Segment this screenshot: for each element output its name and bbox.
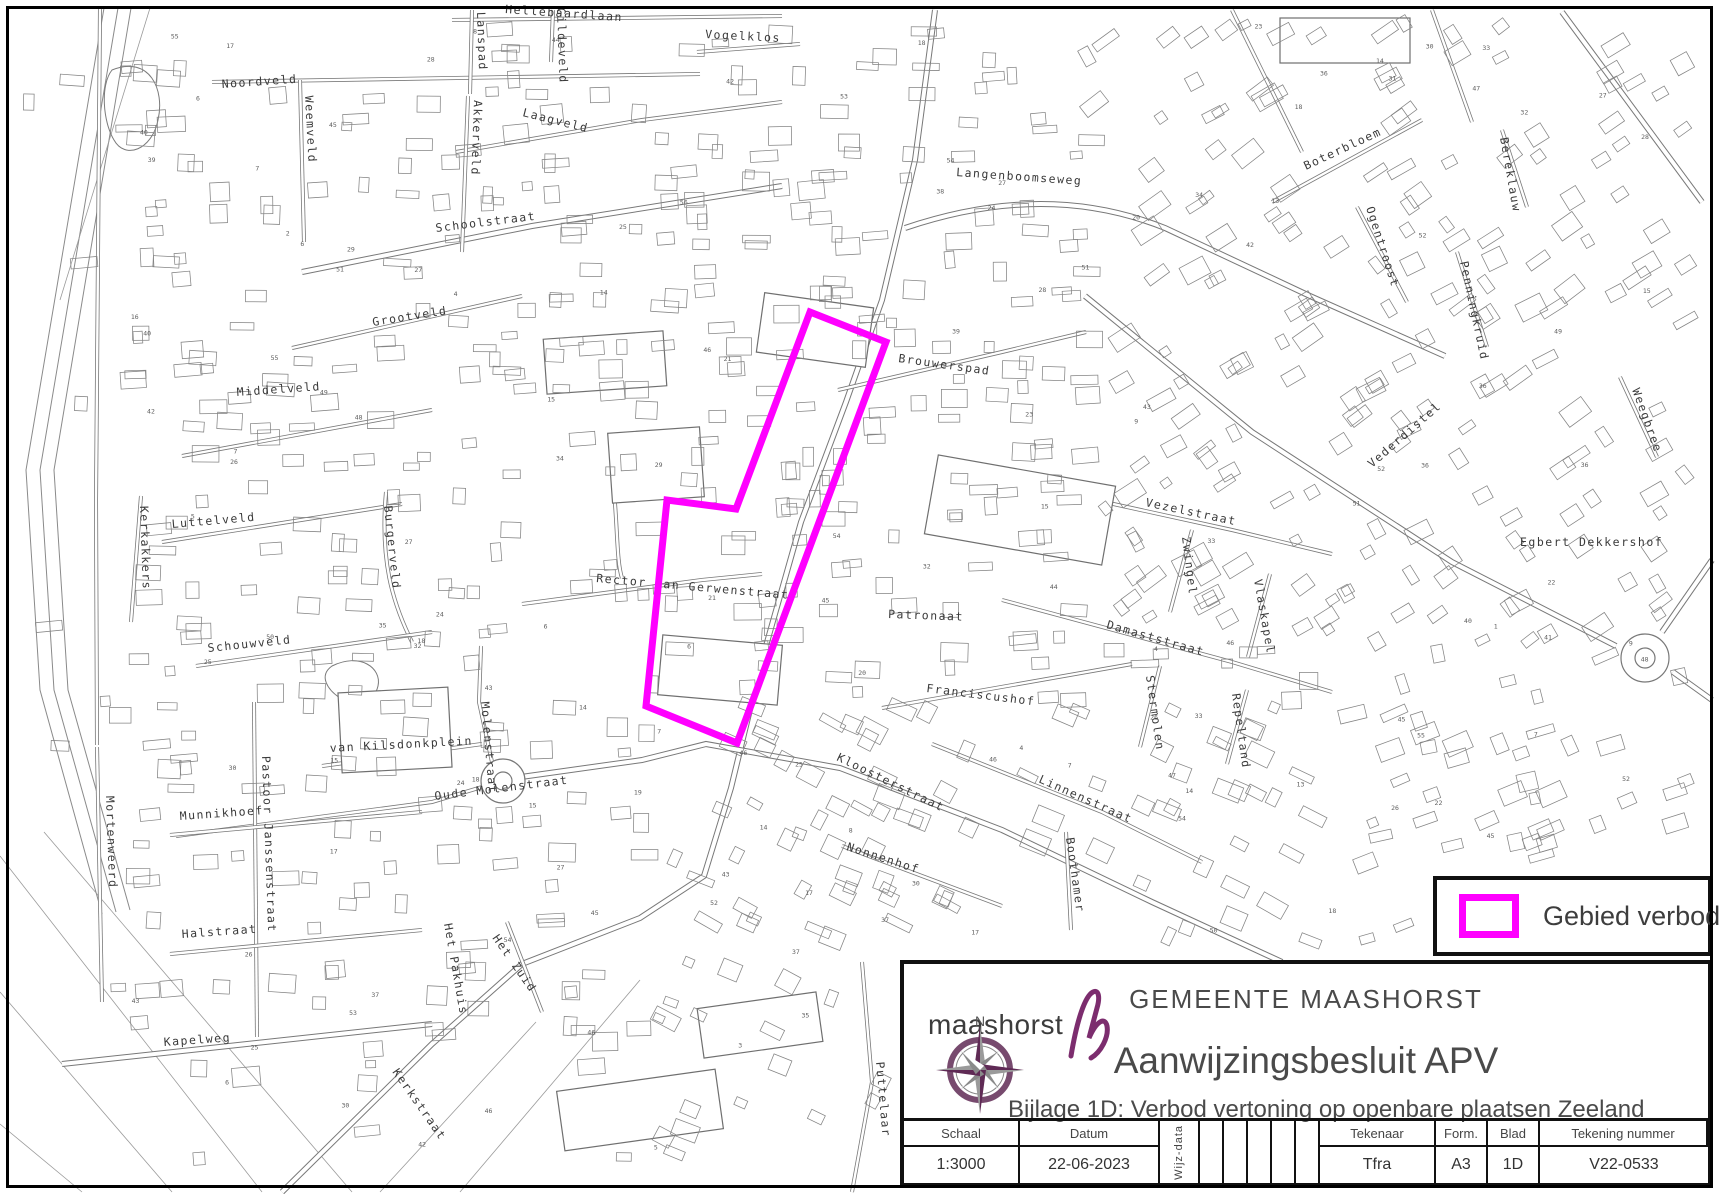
street-label: Vezelstraat: [1144, 495, 1238, 528]
house-number: 27: [1599, 91, 1607, 99]
building: [951, 151, 974, 162]
house-number: 2: [286, 229, 290, 237]
building: [734, 1097, 748, 1109]
building: [1032, 805, 1064, 832]
building: [507, 46, 529, 63]
building: [1623, 73, 1645, 91]
house-number: 25: [619, 223, 627, 231]
building: [248, 481, 267, 494]
building: [993, 262, 1006, 281]
street-label: Noordveld: [221, 72, 298, 91]
building: [1404, 181, 1432, 208]
building: [1092, 29, 1119, 52]
building: [1018, 380, 1029, 393]
building: [835, 238, 860, 256]
street-label: Kerkakkers: [137, 506, 154, 591]
house-number: 37: [371, 991, 379, 999]
house-number: 37: [792, 948, 800, 956]
building: [486, 22, 512, 37]
col-form: Form.: [1436, 1121, 1488, 1147]
house-number: 15: [1041, 502, 1049, 510]
building: [133, 875, 160, 888]
house-number: 9: [1134, 418, 1138, 426]
building: [1503, 365, 1532, 390]
building: [357, 1075, 377, 1092]
building: [1552, 211, 1583, 241]
building: [174, 253, 186, 265]
building: [136, 589, 162, 605]
building: [333, 566, 347, 576]
building: [51, 740, 69, 751]
building: [1500, 508, 1522, 527]
house-number: 32: [1520, 108, 1528, 116]
building: [796, 402, 815, 412]
house-number: 24: [988, 204, 996, 212]
building: [542, 158, 569, 168]
building: [570, 580, 592, 594]
house-number: 39: [952, 327, 960, 335]
building: [181, 631, 202, 645]
street-label: Middelveld: [236, 379, 321, 399]
house-number: 38: [936, 188, 944, 196]
building: [1264, 207, 1281, 222]
building: [23, 94, 34, 110]
building: [1611, 186, 1629, 203]
building: [173, 60, 186, 76]
building: [1581, 234, 1595, 249]
building: [501, 522, 521, 538]
building: [331, 533, 344, 551]
road-casing: [282, 10, 935, 1192]
house-number: 26: [230, 458, 238, 466]
house-number: 4: [1019, 744, 1023, 752]
railway-line: [54, 8, 131, 910]
building: [462, 438, 477, 449]
building: [297, 597, 320, 615]
road-fill: [182, 410, 432, 456]
house-number: 46: [989, 755, 997, 763]
building: [398, 158, 411, 174]
building: [313, 997, 326, 1010]
building: [1410, 711, 1427, 731]
building: [1673, 311, 1698, 330]
building: [147, 226, 163, 237]
building: [283, 454, 304, 466]
building: [1144, 263, 1169, 286]
col-wijz-data: Wijz-data: [1160, 1121, 1200, 1183]
building: [1387, 158, 1415, 180]
building: [1670, 52, 1694, 76]
house-number: 15: [330, 756, 338, 764]
house-number: 28: [427, 56, 435, 64]
building: [1032, 657, 1050, 670]
building: [1381, 299, 1398, 318]
building: [807, 1109, 825, 1125]
building: [74, 396, 87, 411]
building: [196, 495, 208, 508]
building-large: [1280, 18, 1410, 63]
house-number: 44: [1050, 583, 1058, 591]
building: [1526, 724, 1555, 740]
tekening-value: V22-0533: [1540, 1147, 1708, 1183]
house-number: 27: [557, 864, 565, 872]
building-large: [557, 1069, 724, 1151]
building: [518, 303, 535, 317]
building: [1216, 608, 1239, 629]
building: [172, 271, 191, 287]
building: [193, 854, 218, 869]
house-number: 40: [143, 329, 151, 337]
building: [209, 204, 227, 223]
building: [844, 147, 861, 159]
building: [1154, 111, 1168, 125]
building: [889, 530, 900, 543]
building: [1507, 832, 1525, 851]
house-number: 18: [918, 39, 926, 47]
building: [1652, 86, 1669, 101]
building: [856, 62, 878, 71]
building: [1220, 906, 1248, 932]
road-fill: [302, 186, 782, 272]
building: [1121, 589, 1142, 608]
house-number: 51: [1082, 264, 1090, 272]
house-number: 51: [336, 265, 344, 273]
house-number: 25: [795, 761, 803, 769]
street-label: Laagveld: [521, 105, 590, 135]
house-number: 32: [923, 562, 931, 570]
building: [1601, 33, 1630, 58]
building: [781, 461, 797, 480]
building: [1205, 275, 1219, 288]
building: [941, 389, 967, 407]
house-number: 49: [1554, 327, 1562, 335]
house-number: 17: [330, 847, 338, 855]
building: [1205, 140, 1226, 160]
building: [805, 921, 832, 939]
building: [1031, 444, 1053, 459]
house-number: 13: [1271, 197, 1279, 205]
building: [100, 696, 110, 707]
building: [545, 879, 558, 892]
street-label: Repeltand: [1229, 692, 1253, 769]
building: [1532, 349, 1558, 369]
house-number: 19: [634, 789, 642, 797]
building: [299, 683, 326, 699]
building: [577, 1058, 605, 1076]
schaal-value: 1:3000: [904, 1147, 1020, 1183]
building: [1209, 270, 1226, 286]
house-number: 43: [132, 997, 140, 1005]
building: [580, 263, 602, 277]
road-casing: [852, 962, 872, 1192]
building: [193, 1152, 205, 1165]
building: [1270, 491, 1293, 509]
building: [1481, 246, 1507, 271]
house-number: 46: [485, 1107, 493, 1115]
building: [1184, 72, 1204, 92]
building: [1165, 703, 1181, 718]
house-number: 14: [1185, 787, 1193, 795]
building: [191, 1060, 207, 1077]
building: [693, 239, 710, 250]
building: [544, 186, 560, 204]
building: [826, 796, 850, 818]
house-number: 7: [234, 448, 238, 456]
building: [786, 463, 800, 480]
house-number: 17: [971, 928, 979, 936]
house-number: 36: [1421, 461, 1429, 469]
building: [567, 792, 586, 804]
building: [982, 71, 1004, 82]
building: [698, 134, 718, 150]
house-number: 42: [147, 408, 155, 416]
house-number: 6: [300, 240, 304, 248]
house-number: 37: [881, 916, 889, 924]
building: [1071, 375, 1098, 385]
field-line: [44, 832, 352, 1192]
street-label: Linnenstraat: [1037, 772, 1135, 826]
col-tekenaar: Tekenaar: [1320, 1121, 1436, 1147]
building: [1399, 222, 1415, 238]
building: [1640, 481, 1669, 507]
building: [1492, 18, 1509, 35]
building: [1080, 91, 1109, 118]
building: [1230, 836, 1249, 852]
building: [530, 741, 552, 759]
building: [1375, 738, 1404, 763]
road-casing: [905, 204, 1445, 356]
legend-label: Gebied verbod: [1543, 901, 1719, 932]
building: [869, 407, 896, 419]
building: [582, 970, 605, 980]
building: [1131, 660, 1159, 668]
building: [1444, 24, 1463, 44]
building: [975, 82, 988, 94]
building: [1550, 456, 1576, 480]
street-label: Schouwveld: [207, 632, 292, 655]
house-number: 42: [1246, 241, 1254, 249]
building: [1649, 574, 1666, 593]
building: [1499, 675, 1516, 688]
building: [1179, 256, 1211, 285]
col-blad: Blad: [1488, 1121, 1540, 1147]
street-label: Munnikhoef: [179, 803, 264, 823]
building: [146, 912, 161, 929]
building: [1529, 792, 1541, 805]
building: [1230, 352, 1253, 375]
railway-line: [40, 8, 118, 912]
building: [478, 819, 491, 828]
building: [729, 846, 745, 864]
building: [734, 603, 762, 620]
house-number: 18: [472, 775, 480, 783]
building: [377, 345, 405, 361]
house-number: 36: [1479, 382, 1487, 390]
house-number: 7: [255, 165, 259, 173]
building: [810, 286, 831, 300]
building: [307, 182, 327, 198]
building: [953, 375, 964, 384]
house-number: 3: [738, 1042, 742, 1050]
street-label: Ogentroost: [1363, 205, 1402, 289]
building: [1521, 631, 1539, 648]
building: [1561, 735, 1579, 756]
house-number: 14: [579, 704, 587, 712]
house-number: 56: [680, 198, 688, 206]
house-number: 55: [171, 33, 179, 41]
building: [879, 881, 896, 897]
building: [768, 126, 791, 145]
building: [727, 338, 752, 355]
building: [493, 858, 518, 871]
building: [1268, 701, 1281, 714]
building: [1583, 489, 1601, 508]
building: [697, 214, 707, 230]
road-fill: [1673, 672, 1712, 700]
building: [363, 1041, 383, 1058]
building: [694, 283, 714, 298]
street-label: Lanspad: [474, 12, 490, 71]
building: [35, 620, 62, 632]
building: [1359, 933, 1375, 945]
building: [604, 560, 618, 571]
street-label: Bereklauw: [1497, 136, 1524, 213]
building: [1186, 196, 1208, 214]
street-label: Halstraat: [181, 922, 258, 941]
house-number: 6: [225, 1079, 229, 1087]
house-number: 54: [1178, 814, 1186, 822]
building: [820, 105, 848, 119]
building: [1431, 283, 1458, 305]
house-number: 9: [1629, 639, 1633, 647]
house-number: 43: [485, 684, 493, 692]
house-number: 20: [858, 669, 866, 677]
building: [370, 831, 380, 841]
building: [486, 87, 499, 97]
building: [453, 488, 466, 504]
building: [354, 1125, 380, 1138]
building: [862, 231, 888, 241]
building: [986, 387, 1008, 402]
building: [260, 542, 282, 555]
building: [245, 290, 266, 302]
building: [894, 329, 915, 347]
building: [523, 815, 542, 828]
building: [1329, 432, 1352, 455]
building: [448, 315, 468, 328]
building: [1651, 607, 1666, 622]
building: [1292, 617, 1313, 636]
house-number: 39: [148, 156, 156, 164]
building: [1591, 151, 1610, 168]
house-number: 29: [655, 461, 663, 469]
building: [182, 731, 196, 740]
building: [709, 410, 726, 422]
building: [363, 93, 385, 104]
building: [526, 89, 548, 99]
building: [682, 956, 694, 968]
building: [1477, 227, 1503, 249]
building: [406, 138, 432, 150]
building: [453, 806, 472, 820]
building: [1220, 352, 1251, 378]
building: [1498, 781, 1528, 807]
house-number: 46: [1226, 639, 1234, 647]
building: [467, 586, 480, 599]
building: [946, 233, 972, 251]
building: [473, 345, 496, 352]
building: [1582, 612, 1614, 641]
building: [857, 728, 878, 751]
building: [886, 318, 896, 328]
building: [1592, 647, 1619, 665]
title-block-table: Schaal Datum Wijz-data Tekenaar Form. Bl…: [904, 1118, 1708, 1183]
building: [303, 699, 314, 714]
building: [663, 996, 679, 1008]
building: [335, 820, 352, 838]
building: [1214, 474, 1236, 492]
street-label: Weemveld: [302, 95, 320, 163]
map-sheet: 4612745548352213232262720428564625511535…: [0, 0, 1719, 1194]
road-fill: [282, 10, 935, 1192]
building: [437, 844, 459, 864]
house-number: 27: [405, 538, 413, 546]
building: [1222, 552, 1253, 579]
building: [1367, 632, 1386, 652]
building: [139, 808, 160, 822]
building: [694, 265, 716, 279]
building: [188, 161, 203, 172]
building: [639, 725, 655, 742]
building: [1560, 186, 1585, 211]
street-label: Gildeveld: [554, 8, 571, 84]
building: [1618, 572, 1638, 592]
house-number: 15: [1643, 287, 1651, 295]
building: [1449, 448, 1469, 470]
street-label: Langenboomseweg: [956, 165, 1083, 188]
building: [241, 585, 257, 596]
building: [733, 897, 758, 918]
building: [811, 810, 829, 830]
house-number: 14: [1376, 57, 1384, 65]
building: [1156, 26, 1179, 48]
building: [629, 224, 642, 234]
building: [747, 797, 763, 811]
building: [1030, 112, 1046, 125]
street-label: Vlaskapel: [1251, 578, 1278, 655]
datum-value: 22-06-2023: [1020, 1147, 1160, 1183]
house-number: 25: [251, 1043, 259, 1051]
building: [1526, 250, 1551, 271]
building: [1069, 703, 1089, 719]
building: [217, 412, 243, 430]
building: [250, 423, 270, 434]
house-number: 25: [204, 658, 212, 666]
house-number: 45: [1487, 832, 1495, 840]
building: [359, 177, 370, 192]
house-number: 15: [547, 395, 555, 403]
building: [1218, 462, 1240, 482]
building: [745, 241, 767, 250]
house-number: 45: [329, 121, 337, 129]
road-fill: [852, 962, 872, 1192]
building: [1443, 229, 1470, 252]
building: [1109, 371, 1134, 394]
building: [1439, 216, 1455, 233]
building: [1054, 631, 1065, 643]
building: [792, 66, 805, 85]
building: [699, 436, 719, 445]
